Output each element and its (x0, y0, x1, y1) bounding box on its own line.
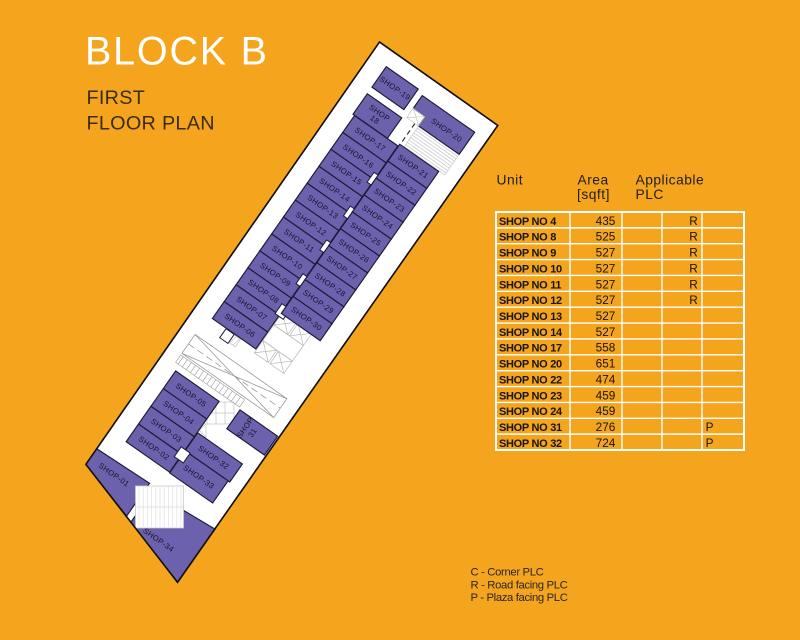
svg-text:SHOP NO 20: SHOP NO 20 (499, 359, 562, 371)
svg-text:PLC: PLC (636, 187, 664, 202)
svg-text:SHOP NO 14: SHOP NO 14 (499, 327, 563, 339)
svg-text:SHOP NO 23: SHOP NO 23 (499, 390, 562, 402)
svg-text:Area: Area (578, 173, 609, 188)
svg-text:Applicable: Applicable (636, 173, 705, 188)
svg-text:527: 527 (596, 325, 616, 339)
svg-text:FIRST: FIRST (87, 87, 146, 109)
svg-text:SHOP NO 10: SHOP NO 10 (499, 263, 562, 275)
svg-text:651: 651 (596, 357, 616, 371)
svg-text:[sqft]: [sqft] (577, 187, 610, 202)
svg-text:SHOP NO 24: SHOP NO 24 (499, 406, 563, 418)
svg-text:R: R (689, 261, 698, 275)
svg-text:SHOP NO 32: SHOP NO 32 (499, 438, 562, 450)
svg-text:474: 474 (596, 372, 616, 386)
svg-text:SHOP NO 8: SHOP NO 8 (499, 232, 556, 244)
svg-text:SHOP NO 11: SHOP NO 11 (499, 279, 561, 291)
svg-text:R: R (689, 246, 698, 260)
svg-text:P: P (706, 436, 714, 450)
svg-text:SHOP NO 17: SHOP NO 17 (499, 343, 562, 355)
svg-text:R: R (689, 293, 698, 307)
svg-text:Unit: Unit (497, 173, 524, 188)
svg-text:459: 459 (596, 404, 616, 418)
svg-text:724: 724 (596, 436, 616, 450)
svg-text:558: 558 (596, 341, 616, 355)
svg-text:SHOP NO 4: SHOP NO 4 (499, 216, 557, 228)
svg-text:527: 527 (596, 277, 616, 291)
svg-text:R - Road facing PLC: R - Road facing PLC (471, 579, 568, 591)
svg-text:R: R (689, 214, 698, 228)
svg-text:SHOP NO 31: SHOP NO 31 (499, 422, 562, 434)
svg-text:527: 527 (596, 246, 616, 260)
svg-text:C - Corner PLC: C - Corner PLC (471, 567, 544, 579)
svg-text:SHOP NO 22: SHOP NO 22 (499, 374, 562, 386)
svg-text:527: 527 (596, 293, 616, 307)
svg-text:BLOCK B: BLOCK B (85, 30, 269, 74)
svg-text:527: 527 (596, 261, 616, 275)
svg-text:P - Plaza facing PLC: P - Plaza facing PLC (471, 592, 568, 604)
svg-text:FLOOR PLAN: FLOOR PLAN (87, 113, 215, 135)
svg-text:459: 459 (596, 388, 616, 402)
svg-text:R: R (689, 230, 698, 244)
svg-text:527: 527 (596, 309, 616, 323)
svg-text:SHOP NO 12: SHOP NO 12 (499, 295, 562, 307)
svg-text:P: P (706, 420, 714, 434)
svg-text:435: 435 (596, 214, 616, 228)
svg-text:SHOP NO 9: SHOP NO 9 (499, 248, 556, 260)
svg-text:276: 276 (596, 420, 616, 434)
svg-text:SHOP NO 13: SHOP NO 13 (499, 311, 562, 323)
svg-text:R: R (689, 277, 698, 291)
svg-text:525: 525 (596, 230, 616, 244)
